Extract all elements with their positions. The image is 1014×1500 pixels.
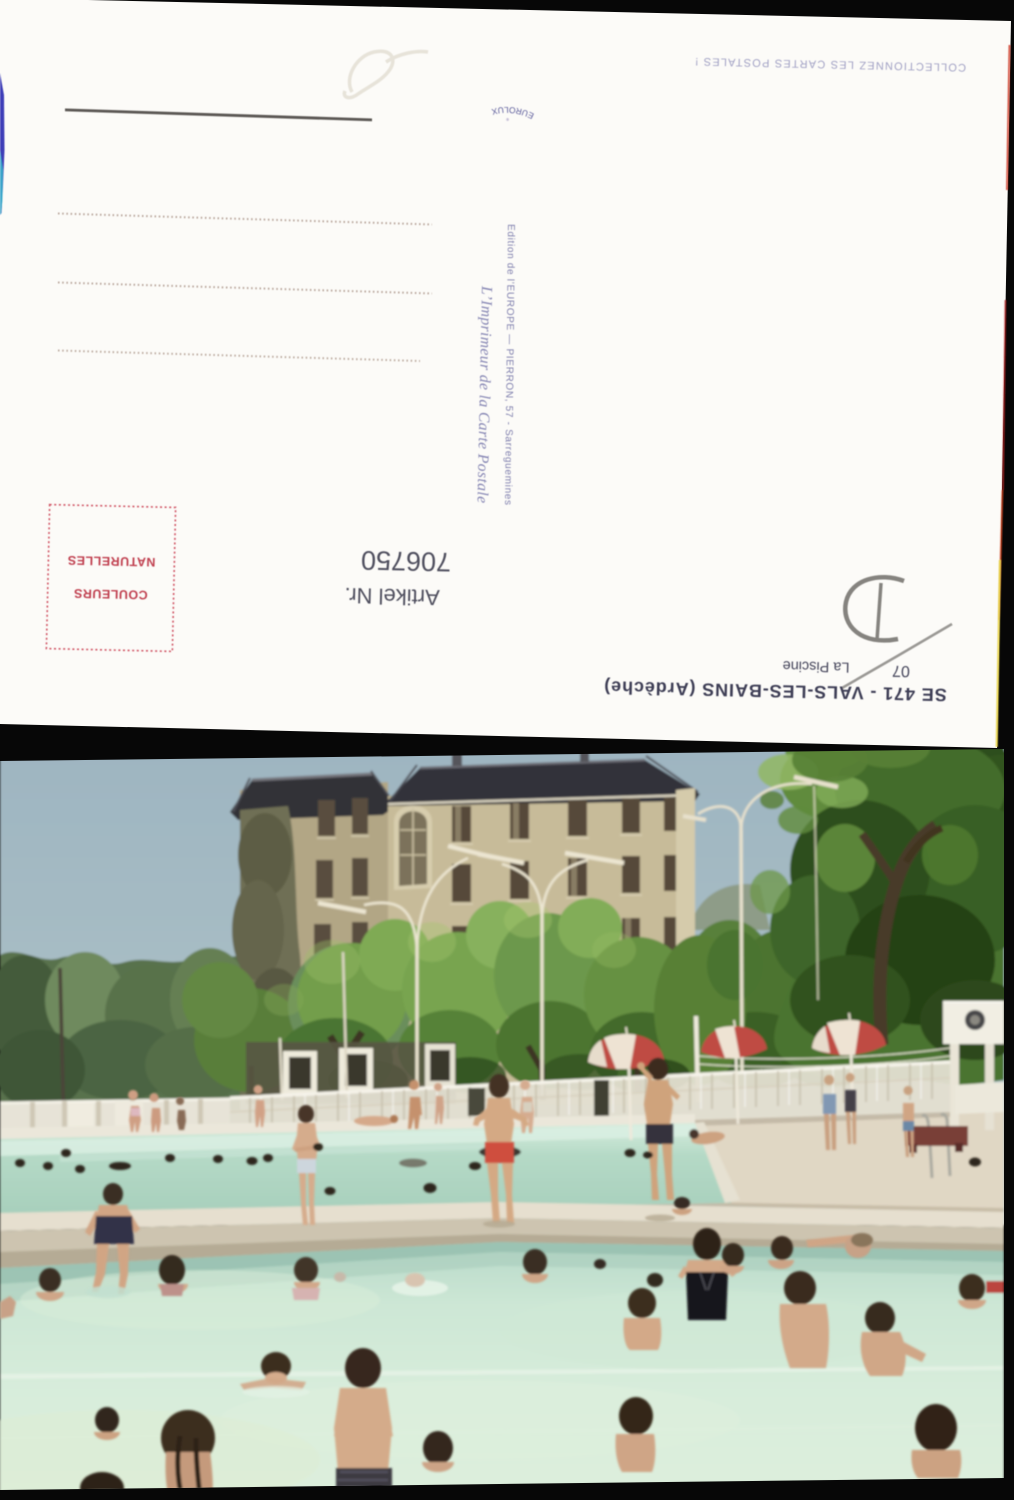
- svg-text:COULEURS: COULEURS: [73, 586, 147, 602]
- svg-text:®: ®: [506, 117, 509, 122]
- svg-text:07: 07: [892, 662, 910, 679]
- svg-text:706750: 706750: [361, 545, 452, 577]
- svg-text:Artikel Nr.: Artikel Nr.: [344, 583, 440, 610]
- svg-text:NATURELLES: NATURELLES: [67, 553, 155, 569]
- svg-text:La Piscine: La Piscine: [782, 657, 849, 675]
